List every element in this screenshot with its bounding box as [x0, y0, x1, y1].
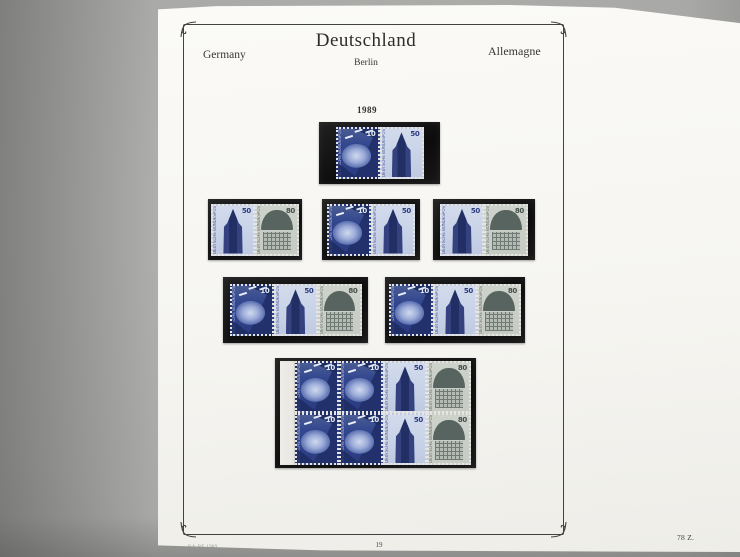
stamp-inscription: DEUTSCHE BUNDESPOST BERLIN — [479, 288, 483, 334]
stamp-tower-50: DEUTSCHE BUNDESPOST BERLIN 50 — [274, 284, 318, 336]
stamp-inscription: DEUTSCHE BUNDESPOST BERLIN — [320, 288, 324, 334]
stamp-sculpture-10: DEUTSCHE BUNDESPOST BERLIN 10 — [339, 361, 383, 413]
page-number: 19 — [364, 541, 394, 549]
stamp-value: 80 — [286, 207, 295, 215]
stamp-mount-pair: DEUTSCHE BUNDESPOST BERLIN 10 DEUTSCHE B… — [322, 199, 420, 260]
stamp-interior-80: DEUTSCHE BUNDESPOST BERLIN 80 — [255, 204, 299, 256]
stamp-inscription: DEUTSCHE BUNDESPOST BERLIN — [391, 288, 395, 334]
stamp-value: 50 — [414, 364, 423, 372]
pane-stamp-grid: DEUTSCHE BUNDESPOST BERLIN 10 DEUTSCHE B… — [295, 361, 471, 465]
stamp-value: 10 — [358, 207, 367, 215]
stamp-inscription: DEUTSCHE BUNDESPOST BERLIN — [385, 417, 389, 463]
stamp-tower-50: DEUTSCHE BUNDESPOST BERLIN 50 — [380, 127, 424, 179]
stamp-interior-80: DEUTSCHE BUNDESPOST BERLIN 80 — [477, 284, 521, 336]
sheet-reference: 78 Z. — [677, 533, 694, 542]
stamp-inscription: DEUTSCHE BUNDESPOST BERLIN — [213, 208, 217, 254]
stamp-inscription: DEUTSCHE BUNDESPOST BERLIN — [442, 208, 446, 254]
photo-background: Deutschland Germany Allemagne Berlin 198… — [0, 0, 740, 557]
stamp-mount-pair: DEUTSCHE BUNDESPOST BERLIN 50 DEUTSCHE B… — [208, 199, 302, 260]
stamp-inscription: DEUTSCHE BUNDESPOST BERLIN — [385, 365, 389, 411]
stamp-inscription: DEUTSCHE BUNDESPOST BERLIN — [341, 365, 345, 411]
stamp-inscription: DEUTSCHE BUNDESPOST BERLIN — [329, 208, 333, 254]
stamp-tower-50: DEUTSCHE BUNDESPOST BERLIN 50 — [371, 204, 415, 256]
border-flourish-icon — [180, 21, 196, 37]
stamp-value: 80 — [508, 287, 517, 295]
stamp-inscription: DEUTSCHE BUNDESPOST BERLIN — [382, 131, 386, 177]
stamp-interior-80: DEUTSCHE BUNDESPOST BERLIN 80 — [427, 361, 471, 413]
stamp-inscription: DEUTSCHE BUNDESPOST BERLIN — [297, 417, 301, 463]
stamp-value: 80 — [348, 287, 357, 295]
stamp-sculpture-10: DEUTSCHE BUNDESPOST BERLIN 10 — [336, 127, 380, 179]
stamp-tower-50: DEUTSCHE BUNDESPOST BERLIN 50 — [383, 413, 427, 465]
stamp-value: 50 — [402, 207, 411, 215]
stamp-inscription: DEUTSCHE BUNDESPOST BERLIN — [297, 365, 301, 411]
stamp-value: 50 — [304, 287, 313, 295]
stamp-inscription: DEUTSCHE BUNDESPOST BERLIN — [257, 208, 261, 254]
stamp-interior-80: DEUTSCHE BUNDESPOST BERLIN 80 — [318, 284, 362, 336]
stamp-value: 10 — [326, 416, 335, 424]
border-flourish-icon — [551, 522, 567, 538]
stamp-tower-50: DEUTSCHE BUNDESPOST BERLIN 50 — [440, 204, 484, 256]
stamp-interior-80: DEUTSCHE BUNDESPOST BERLIN 80 — [484, 204, 528, 256]
region-subtitle: Berlin — [316, 58, 416, 68]
stamp-value: 10 — [326, 364, 335, 372]
stamp-mount-booklet-pane: DEUTSCHE BUNDESPOST BERLIN 10 DEUTSCHE B… — [275, 358, 476, 468]
stamp-value: 80 — [515, 207, 524, 215]
year-label: 1989 — [337, 105, 397, 115]
stamp-inscription: DEUTSCHE BUNDESPOST BERLIN — [435, 288, 439, 334]
stamp-value: 50 — [242, 207, 251, 215]
stamp-inscription: DEUTSCHE BUNDESPOST BERLIN — [232, 288, 236, 334]
booklet-pane: DEUTSCHE BUNDESPOST BERLIN 10 DEUTSCHE B… — [280, 361, 471, 465]
stamp-interior-80: DEUTSCHE BUNDESPOST BERLIN 80 — [427, 413, 471, 465]
stamp-value: 50 — [410, 130, 419, 138]
stamp-inscription: DEUTSCHE BUNDESPOST BERLIN — [338, 131, 342, 177]
stamp-value: 10 — [420, 287, 429, 295]
stamp-value: 10 — [260, 287, 269, 295]
stamp-value: 10 — [370, 416, 379, 424]
border-flourish-icon — [551, 21, 567, 37]
stamp-inscription: DEUTSCHE BUNDESPOST BERLIN — [373, 208, 377, 254]
border-flourish-icon — [180, 522, 196, 538]
country-label-french: Allemagne — [488, 44, 541, 59]
stamp-value: 50 — [414, 416, 423, 424]
stamp-value: 50 — [471, 207, 480, 215]
country-label-english: Germany — [203, 49, 246, 61]
stamp-inscription: DEUTSCHE BUNDESPOST BERLIN — [341, 417, 345, 463]
stamp-value: 80 — [458, 364, 467, 372]
stamp-tower-50: DEUTSCHE BUNDESPOST BERLIN 50 — [211, 204, 255, 256]
album-brand-mark: KA-BE 1989 — [188, 545, 218, 550]
stamp-mount-pair: DEUTSCHE BUNDESPOST BERLIN 50 DEUTSCHE B… — [433, 199, 535, 260]
stamp-value: 80 — [458, 416, 467, 424]
stamp-value: 50 — [464, 287, 473, 295]
stamp-inscription: DEUTSCHE BUNDESPOST BERLIN — [276, 288, 280, 334]
stamp-inscription: DEUTSCHE BUNDESPOST BERLIN — [486, 208, 490, 254]
stamp-inscription: DEUTSCHE BUNDESPOST BERLIN — [429, 417, 433, 463]
stamp-value: 10 — [370, 364, 379, 372]
stamp-mount-strip: DEUTSCHE BUNDESPOST BERLIN 10 DEUTSCHE B… — [223, 277, 368, 343]
stamp-sculpture-10: DEUTSCHE BUNDESPOST BERLIN 10 — [327, 204, 371, 256]
stamp-mount-pair: DEUTSCHE BUNDESPOST BERLIN 10 DEUTSCHE B… — [319, 122, 440, 184]
stamp-sculpture-10: DEUTSCHE BUNDESPOST BERLIN 10 — [295, 361, 339, 413]
pane-selvage-margin — [280, 361, 295, 465]
stamp-sculpture-10: DEUTSCHE BUNDESPOST BERLIN 10 — [389, 284, 433, 336]
stamp-value: 10 — [366, 130, 375, 138]
stamp-sculpture-10: DEUTSCHE BUNDESPOST BERLIN 10 — [295, 413, 339, 465]
stamp-inscription: DEUTSCHE BUNDESPOST BERLIN — [429, 365, 433, 411]
stamp-tower-50: DEUTSCHE BUNDESPOST BERLIN 50 — [433, 284, 477, 336]
stamp-mount-strip: DEUTSCHE BUNDESPOST BERLIN 10 DEUTSCHE B… — [385, 277, 525, 343]
page-title: Deutschland — [276, 30, 456, 52]
album-page: Deutschland Germany Allemagne Berlin 198… — [158, 5, 740, 552]
stamp-sculpture-10: DEUTSCHE BUNDESPOST BERLIN 10 — [230, 284, 274, 336]
stamp-tower-50: DEUTSCHE BUNDESPOST BERLIN 50 — [383, 361, 427, 413]
stamp-sculpture-10: DEUTSCHE BUNDESPOST BERLIN 10 — [339, 413, 383, 465]
